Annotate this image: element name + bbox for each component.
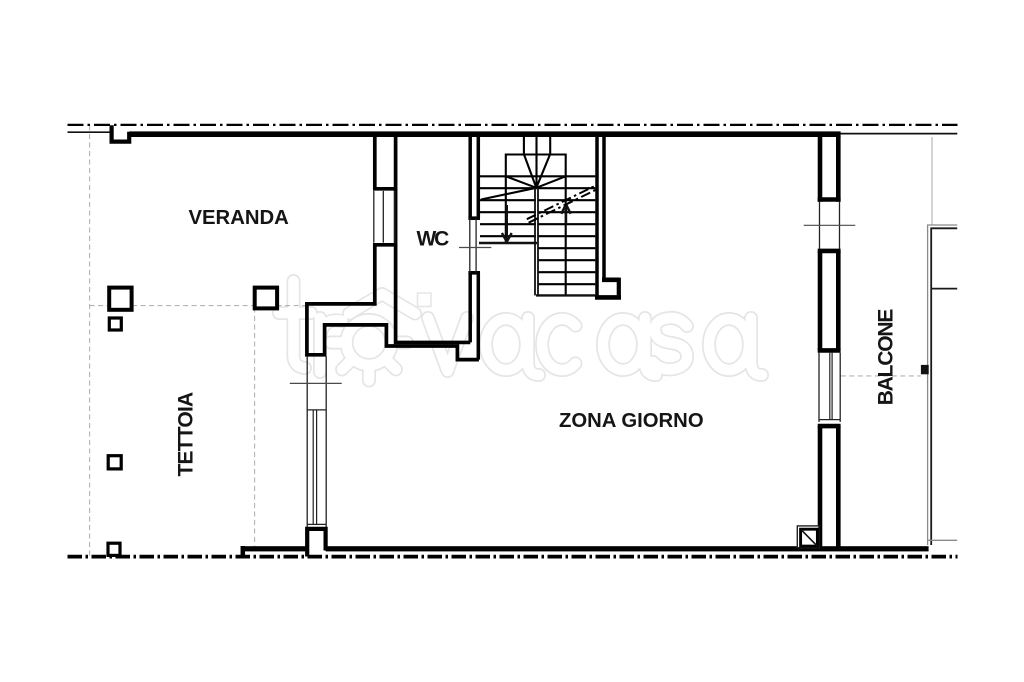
svg-text:VERANDA: VERANDA: [189, 207, 290, 229]
svg-text:BALCONE: BALCONE: [874, 309, 897, 406]
svg-text:ZONA GIORNO: ZONA GIORNO: [559, 410, 704, 432]
svg-text:TETTOIA: TETTOIA: [174, 392, 197, 476]
svg-text:WC: WC: [417, 227, 450, 250]
